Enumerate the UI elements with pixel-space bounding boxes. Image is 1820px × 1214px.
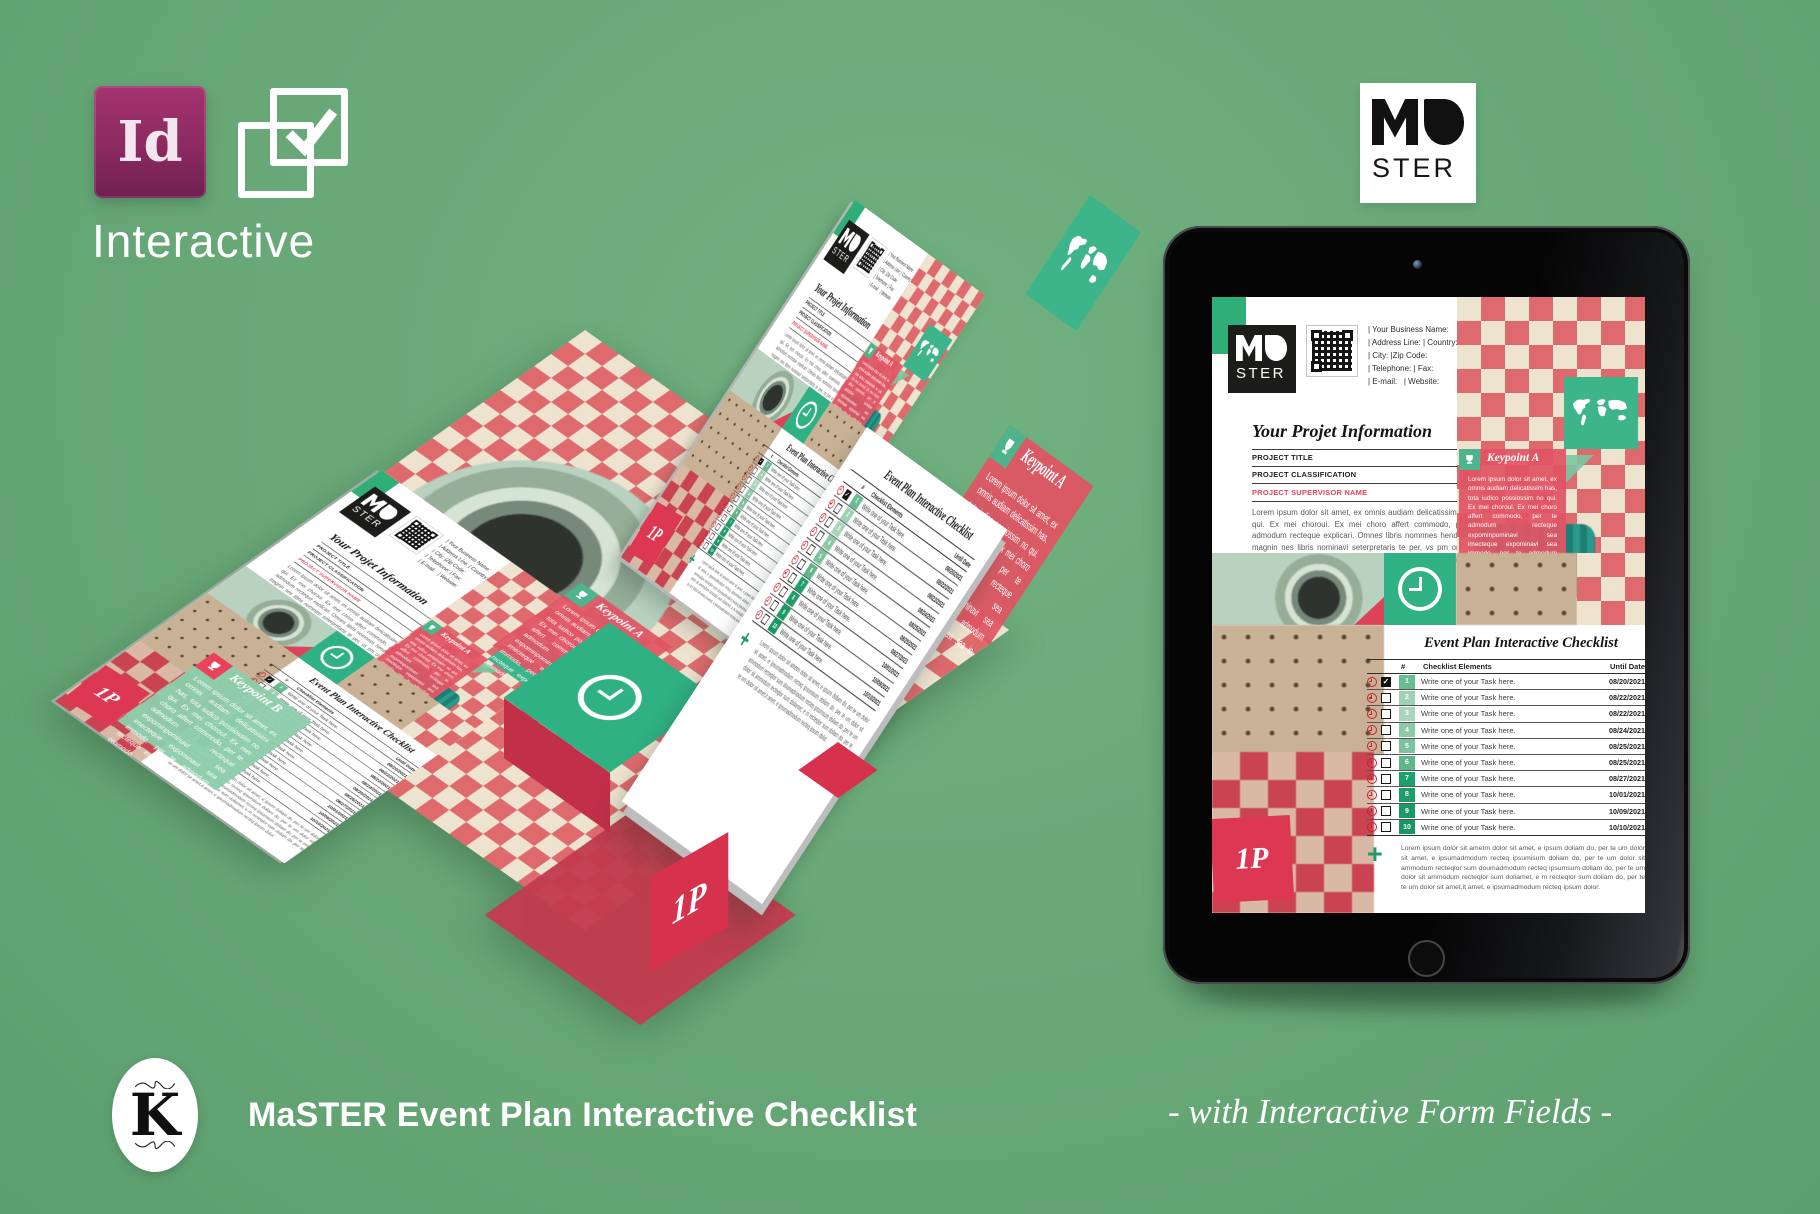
checklist-row: 3 Write one of your Task here. 08/22/202… — [1367, 706, 1645, 722]
world-map-block — [1564, 377, 1638, 449]
task-field[interactable]: Write one of your Task here. — [1415, 823, 1589, 832]
deadline-clock-icon — [1367, 677, 1377, 687]
checklist-row: 10 Write one of your Task here. 10/10/20… — [1367, 820, 1645, 836]
red-triangle-accent — [1354, 597, 1384, 625]
deadline-clock-icon — [1367, 822, 1377, 832]
until-date[interactable]: 10/09/2021 — [1589, 807, 1645, 816]
checklist-row: 7 Write one of your Task here. 08/27/202… — [1367, 771, 1645, 787]
qr-eye-icon — [394, 531, 406, 539]
qr-code — [1306, 325, 1358, 377]
row-number: 6 — [1399, 756, 1415, 770]
master-logo-dark: STER — [1228, 325, 1296, 393]
master-m-glyph — [1372, 99, 1418, 145]
until-date[interactable]: 10/10/2021 — [1589, 823, 1645, 832]
clock-block — [1384, 553, 1456, 625]
task-checkbox[interactable] — [1381, 693, 1391, 703]
row-number: 2 — [1399, 691, 1415, 705]
row-number: 7 — [1399, 772, 1415, 786]
master-logo-card: STER — [1360, 83, 1476, 203]
deadline-clock-icon — [1367, 806, 1377, 816]
task-field[interactable]: Write one of your Task here. — [1415, 790, 1589, 799]
checklist-footer: + Lorem ipsum dolor sit ametm dolor sit … — [1367, 844, 1645, 893]
qr-eye-icon — [868, 241, 875, 250]
row-number: 5 — [1399, 739, 1415, 753]
qr-eye-icon — [1311, 330, 1322, 341]
task-field[interactable]: Write one of your Task here. — [1415, 774, 1589, 783]
deadline-clock-icon — [1367, 790, 1377, 800]
qr-eye-icon — [856, 259, 863, 268]
checklist-title: Event Plan Interactive Checklist — [1401, 635, 1641, 652]
flourish-icon — [133, 1141, 177, 1150]
checklist-row: 6 Write one of your Task here. 08/25/202… — [1367, 755, 1645, 771]
task-field[interactable]: Write one of your Task here. — [1415, 709, 1589, 718]
checklist-row: 1 Write one of your Task here. 08/20/202… — [1367, 674, 1645, 690]
task-field[interactable]: Write one of your Task here. — [1415, 807, 1589, 816]
until-date[interactable]: 08/27/2021 — [1589, 774, 1645, 783]
world-map-icon — [1050, 228, 1116, 298]
row-number: 1 — [1399, 675, 1415, 689]
brand-mark: K — [130, 1089, 180, 1141]
contact-line: | City: |Zip Code: — [1368, 351, 1427, 360]
master-a-glyph — [1265, 335, 1287, 361]
row-number: 10 — [1399, 820, 1415, 834]
product-title: MaSTER Event Plan Interactive Checklist — [248, 1096, 917, 1135]
master-ster-text: STER — [1236, 365, 1286, 382]
master-ster-text: STER — [1372, 153, 1476, 184]
master-a-glyph — [1424, 99, 1464, 145]
row-number: 8 — [1399, 788, 1415, 802]
qr-eye-icon — [1311, 361, 1322, 372]
pegboard-photo-strip — [1456, 553, 1577, 625]
page-number-text: 1P — [672, 871, 707, 933]
checkerboard-strip — [1577, 553, 1645, 625]
add-task-plus-icon[interactable]: + — [1367, 844, 1401, 893]
promo-canvas: Id Interactive STER STER — [0, 0, 1820, 1214]
event-plan-page: STER | Your Business Name: | Address Lin… — [1212, 297, 1645, 913]
isometric-mockup-scene: STER | Your Business Name: | Address Lin… — [0, 0, 1160, 1214]
home-button[interactable] — [1408, 940, 1445, 977]
keypoint-a-block: Keypoint A Lorem ipsum dolor sit amet, e… — [1459, 449, 1566, 554]
task-checkbox[interactable] — [264, 676, 275, 684]
author-brand-badge: K — [112, 1058, 198, 1172]
column-number: # — [1401, 662, 1417, 671]
until-date[interactable]: 08/24/2021 — [1589, 726, 1645, 735]
contact-line: | Your Business Name: — [1368, 325, 1449, 334]
page-number-badge: 1P — [1212, 815, 1294, 903]
task-field[interactable]: Write one of your Task here. — [1415, 742, 1589, 751]
clock-icon — [1398, 567, 1442, 611]
task-checkbox[interactable] — [1381, 677, 1391, 687]
task-field[interactable]: Write one of your Task here. — [1415, 693, 1589, 702]
master-m-glyph — [1236, 335, 1262, 361]
checklist-section: Event Plan Interactive Checklist # Check… — [1367, 635, 1645, 911]
checklist-row: 9 Write one of your Task here. 10/09/202… — [1367, 804, 1645, 820]
task-field[interactable]: Write one of your Task here. — [1415, 758, 1589, 767]
task-checkbox[interactable] — [1381, 790, 1391, 800]
deadline-clock-icon — [1367, 709, 1377, 719]
column-until-date: Until Date — [1589, 662, 1645, 671]
column-elements: Checklist Elements — [1417, 662, 1589, 671]
checklist-header-row: # Checklist Elements Until Date — [1367, 659, 1645, 674]
green-triangle-accent — [1566, 455, 1594, 483]
until-date[interactable]: 08/25/2021 — [1589, 758, 1645, 767]
until-date[interactable]: 08/22/2021 — [1589, 693, 1645, 702]
qr-eye-icon — [877, 248, 884, 257]
checklist-row: 2 Write one of your Task here. 08/22/202… — [1367, 690, 1645, 706]
pegboard-photo — [1212, 625, 1384, 755]
camera-icon — [1413, 260, 1422, 269]
task-checkbox[interactable] — [1381, 822, 1391, 832]
iso-world-map-panel — [1025, 195, 1141, 331]
qr-eye-icon — [411, 520, 423, 528]
tablet-device: STER | Your Business Name: | Address Lin… — [1163, 226, 1690, 984]
until-date[interactable]: 08/20/2021 — [1589, 677, 1645, 686]
checklist-footer-paragraph: Lorem ipsum dolor sit ametm dolor sit am… — [1401, 844, 1645, 893]
checklist-row: 8 Write one of your Task here. 10/01/202… — [1367, 787, 1645, 803]
deadline-clock-icon — [1367, 758, 1377, 768]
contact-line: | E-mail: | Website: — [1368, 377, 1439, 386]
product-tagline: - with Interactive Form Fields - — [1168, 1092, 1612, 1132]
until-date[interactable]: 08/22/2021 — [1589, 709, 1645, 718]
task-checkbox[interactable] — [1381, 774, 1391, 784]
task-checkbox[interactable] — [1381, 709, 1391, 719]
keypoint-a-title: Keypoint A — [1017, 446, 1070, 494]
contact-line: | Address Line: | Country: — [1368, 338, 1458, 347]
checklist-rows: 1 Write one of your Task here. 08/20/202… — [1367, 674, 1645, 836]
until-date[interactable]: 08/25/2021 — [1589, 742, 1645, 751]
task-checkbox[interactable] — [1381, 725, 1391, 735]
deadline-clock-icon — [1367, 725, 1377, 735]
clock-icon — [314, 641, 361, 674]
keypoint-a-title: Keypoint A — [1487, 452, 1539, 464]
deadline-clock-icon — [1367, 693, 1377, 703]
checklist-row: 5 Write one of your Task here. 08/25/202… — [1367, 739, 1645, 755]
task-checkbox[interactable] — [1381, 758, 1391, 768]
world-map-icon — [1571, 396, 1630, 430]
deadline-clock-icon — [1367, 774, 1377, 784]
task-checkbox[interactable] — [1381, 806, 1391, 816]
contact-line: | Telephone: | Fax: — [1368, 364, 1433, 373]
task-field[interactable]: Write one of your Task here. — [1415, 726, 1589, 735]
clock-icon — [564, 666, 654, 730]
trophy-icon — [1459, 449, 1480, 470]
task-checkbox[interactable] — [1381, 741, 1391, 751]
checklist-row: 4 Write one of your Task here. 08/24/202… — [1367, 723, 1645, 739]
qr-eye-icon — [1342, 330, 1353, 341]
qr-eye-icon — [427, 531, 439, 539]
project-info-title: Your Projet Information — [1252, 421, 1432, 442]
row-number: 4 — [1399, 723, 1415, 737]
row-number: 3 — [1399, 707, 1415, 721]
row-number: 9 — [1399, 804, 1415, 818]
until-date[interactable]: 10/01/2021 — [1589, 790, 1645, 799]
deadline-clock-icon — [1367, 741, 1377, 751]
task-field[interactable]: Write one of your Task here. — [1415, 677, 1589, 686]
